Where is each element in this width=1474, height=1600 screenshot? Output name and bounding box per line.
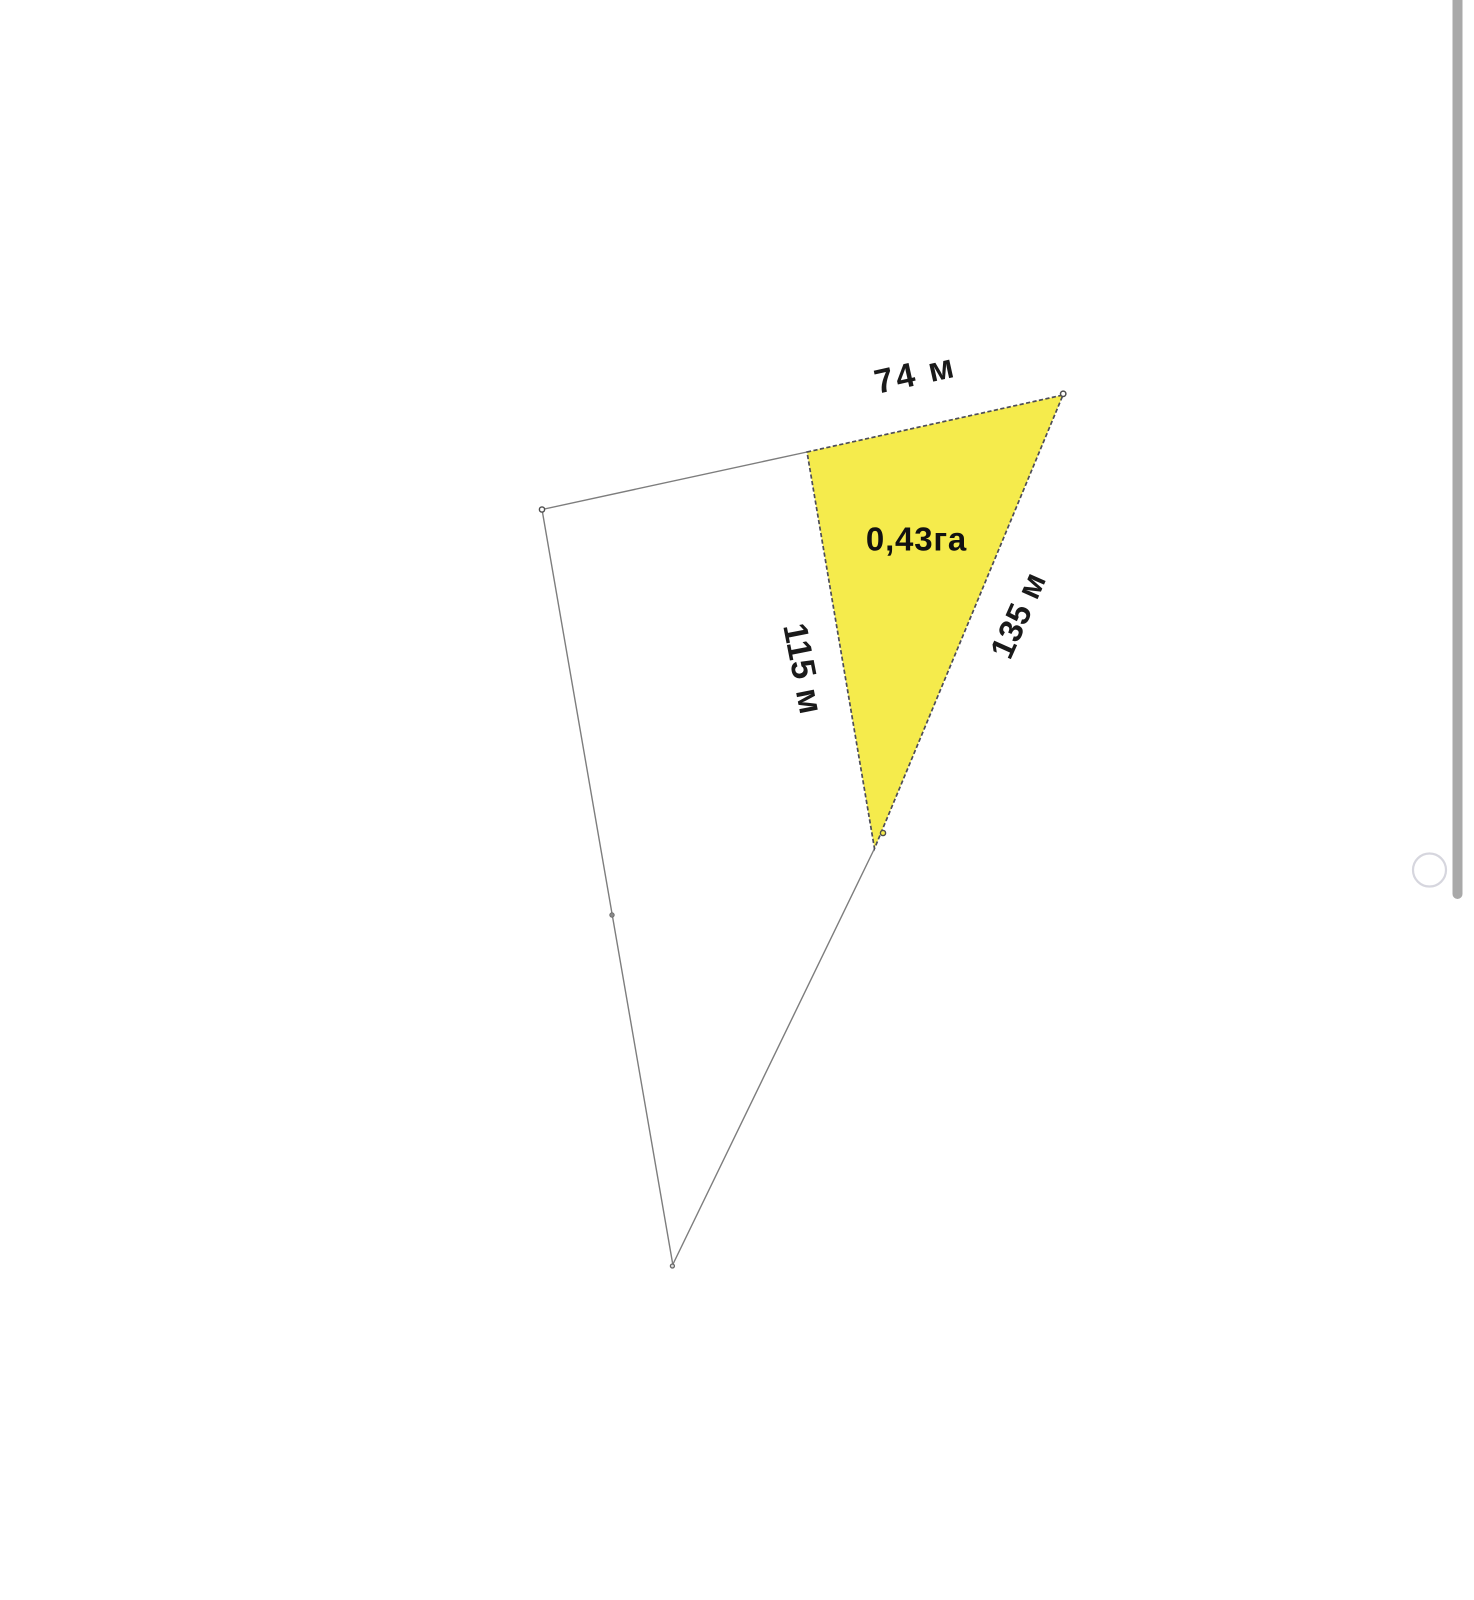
svg-text:135 м: 135 м: [983, 566, 1053, 663]
svg-text:74 м: 74 м: [871, 347, 960, 402]
svg-text:115 м: 115 м: [775, 620, 830, 718]
svg-text:0,43га: 0,43га: [866, 521, 967, 558]
